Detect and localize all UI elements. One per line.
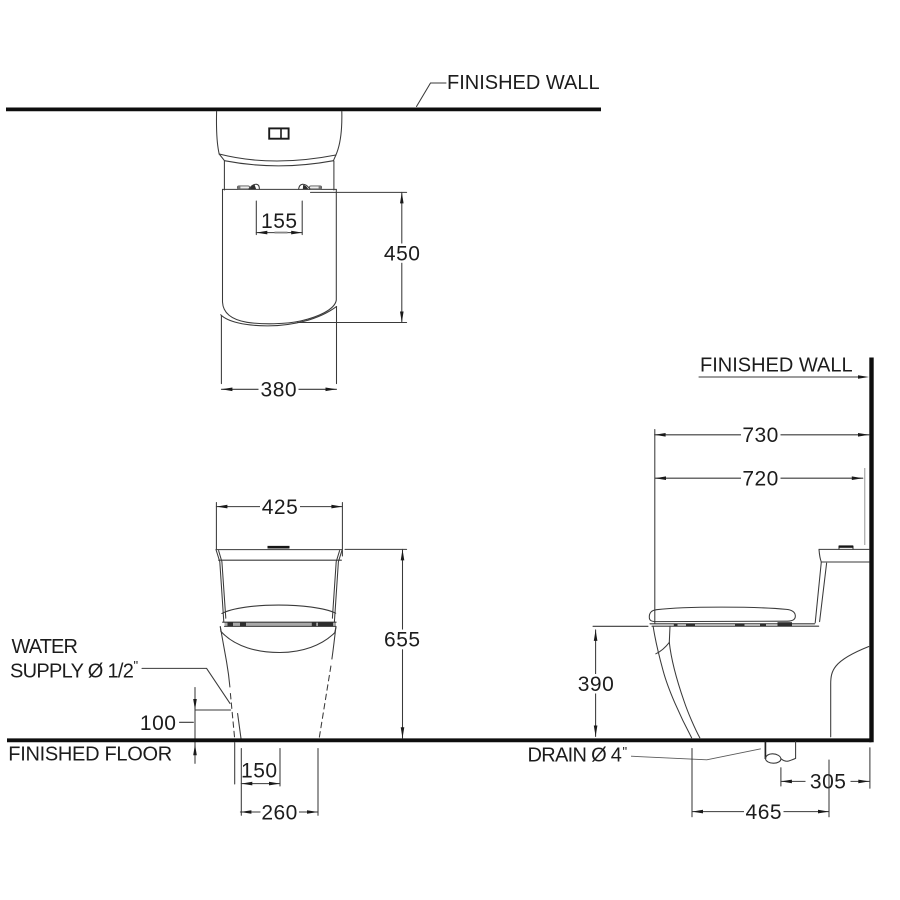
- svg-text:720: 720: [742, 468, 779, 491]
- svg-text:WATER: WATER: [12, 636, 78, 658]
- svg-text:655: 655: [384, 629, 421, 652]
- svg-text:305: 305: [810, 771, 847, 794]
- svg-text:390: 390: [578, 673, 615, 696]
- svg-text:425: 425: [262, 496, 299, 519]
- svg-text:": ": [134, 658, 139, 673]
- svg-text:150: 150: [241, 760, 278, 783]
- svg-text:SUPPLY Ø 1/2: SUPPLY Ø 1/2: [10, 660, 134, 682]
- svg-text:": ": [623, 744, 628, 759]
- svg-text:730: 730: [742, 424, 779, 447]
- svg-text:155: 155: [261, 210, 298, 233]
- svg-text:465: 465: [746, 801, 783, 824]
- svg-text:DRAIN Ø 4: DRAIN Ø 4: [528, 745, 622, 767]
- svg-text:450: 450: [384, 242, 421, 265]
- svg-text:FINISHED WALL: FINISHED WALL: [700, 355, 853, 377]
- svg-text:FINISHED FLOOR: FINISHED FLOOR: [8, 744, 172, 766]
- svg-text:380: 380: [261, 378, 298, 401]
- svg-text:FINISHED WALL: FINISHED WALL: [447, 72, 600, 94]
- svg-text:260: 260: [261, 801, 298, 824]
- svg-text:100: 100: [140, 712, 177, 735]
